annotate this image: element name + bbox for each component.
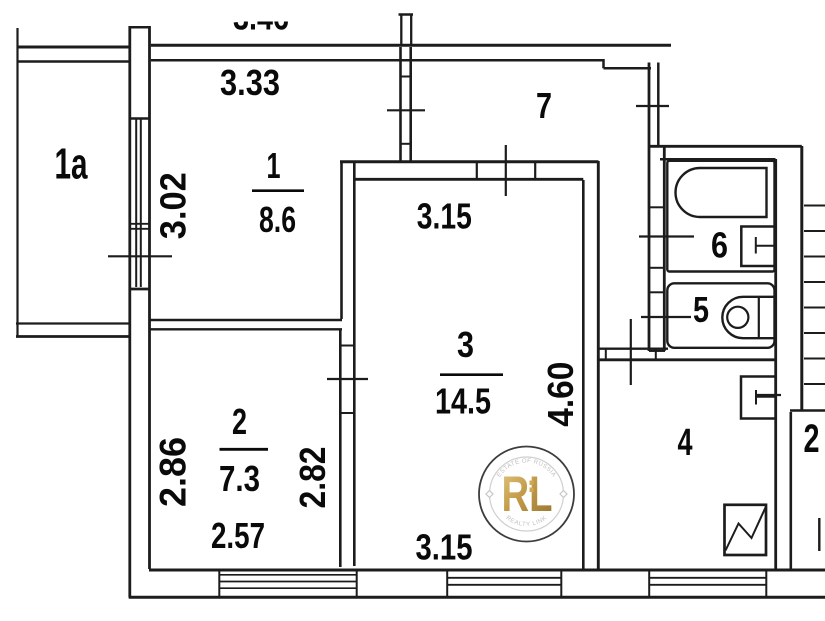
svg-text:1: 1: [267, 145, 281, 186]
svg-text:2: 2: [232, 401, 247, 442]
svg-text:8.6: 8.6: [259, 199, 296, 240]
svg-text:2.57: 2.57: [211, 515, 265, 556]
svg-text:3.15: 3.15: [416, 527, 473, 568]
svg-text:7: 7: [536, 85, 552, 126]
svg-text:2: 2: [804, 417, 820, 461]
svg-text:14.5: 14.5: [435, 381, 491, 422]
svg-text:2.86: 2.86: [153, 437, 194, 507]
svg-text:1a: 1a: [55, 140, 88, 189]
svg-text:4: 4: [678, 422, 693, 464]
svg-text:3.33: 3.33: [220, 62, 280, 103]
svg-text:3: 3: [457, 324, 474, 365]
svg-text:7.3: 7.3: [219, 458, 260, 499]
svg-text:6: 6: [711, 225, 728, 266]
svg-text:RL: RL: [502, 466, 553, 522]
svg-text:2.82: 2.82: [292, 447, 333, 509]
svg-text:5: 5: [693, 289, 709, 330]
svg-text:3.15: 3.15: [417, 196, 472, 237]
svg-text:4.60: 4.60: [540, 362, 581, 427]
svg-text:3.02: 3.02: [152, 172, 193, 239]
